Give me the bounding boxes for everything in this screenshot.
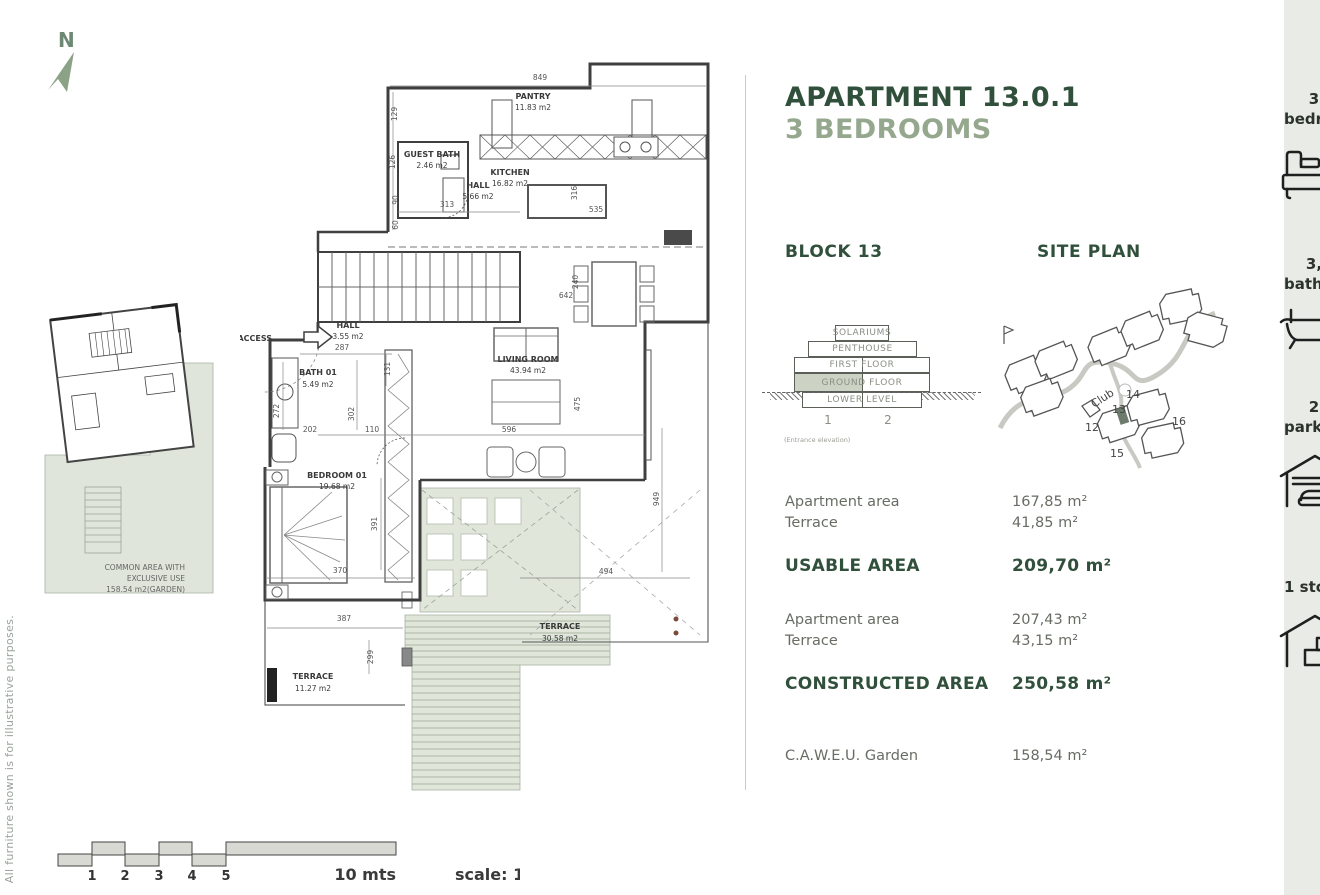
dim: 129 (390, 107, 399, 122)
scale-bar-segments (58, 842, 396, 866)
block-heading: BLOCK 13 (785, 242, 883, 262)
area-row: Apartment area 207,43 m² (0, 612, 1320, 632)
room-label: KITCHEN (490, 168, 529, 177)
site-label-16: 16 (1172, 415, 1186, 428)
feature-count: 3 (1284, 90, 1320, 110)
scale-bar: 1 2 3 4 5 10 mts scale: 1/100 (50, 836, 520, 888)
bathtub-icon (1279, 302, 1320, 358)
scale-tick: 5 (221, 869, 230, 884)
dim: 60 (391, 220, 400, 230)
scale-ratio-label: scale: 1/100 (455, 865, 520, 884)
site-label-13: 13 (1112, 403, 1126, 416)
dim: 202 (303, 425, 318, 434)
level-label: SOLARIUMS (833, 328, 892, 338)
scale-ticks: 1 2 3 4 5 (87, 869, 230, 884)
room-area: 5.49 m2 (302, 380, 333, 389)
area-value: 158,54 m² (1012, 748, 1087, 764)
dim: 126 (388, 155, 397, 170)
dim: 131 (383, 362, 392, 377)
feature-strip: 3 bedrooms 3, bathrooms 2 (1284, 0, 1320, 895)
dining-set (574, 262, 654, 326)
site-label-15: 15 (1110, 447, 1124, 460)
area-row: Apartment area 167,85 m² (0, 494, 1320, 514)
area-label: Terrace (785, 515, 838, 531)
dim: 302 (347, 407, 356, 422)
level-label: GROUND FLOOR (822, 378, 903, 388)
area-value: 167,85 m² (1012, 494, 1087, 510)
unit-number-1: 1 (818, 413, 838, 427)
scale-length-label: 10 mts (334, 865, 396, 884)
scale-tick: 3 (154, 869, 163, 884)
wardrobe (385, 350, 412, 582)
room-area: 43.94 m2 (510, 366, 546, 375)
scale-tick: 2 (120, 869, 129, 884)
bed-icon (1279, 145, 1320, 207)
feature-label: storage (1300, 578, 1320, 596)
scale-tick: 4 (187, 869, 196, 884)
block-elevation-diagram: SOLARIUMS PENTHOUSE FIRST FLOOR GROUND F… (770, 315, 975, 450)
unit-number-2: 2 (878, 413, 898, 427)
dim: 596 (502, 425, 517, 434)
area-label: Terrace (785, 633, 838, 649)
total-label: USABLE AREA (785, 556, 920, 576)
area-value: 43,15 m² (1012, 633, 1078, 649)
room-label: PANTRY (516, 92, 551, 101)
dim: 849 (533, 73, 548, 82)
interior-stairs (318, 252, 520, 322)
room-area: 16.82 m2 (492, 179, 528, 188)
total-value: 209,70 m² (1012, 556, 1111, 576)
feature-count: 2 (1284, 398, 1320, 418)
site-plan-heading: SITE PLAN (1037, 242, 1141, 262)
ground-line (762, 392, 981, 393)
brochure-page: All furniture shown is for illustrative … (0, 0, 1320, 895)
area-label: C.A.W.E.U. Garden (785, 748, 918, 764)
scale-tick: 1 (87, 869, 96, 884)
garden-area-row: C.A.W.E.U. Garden 158,54 m² (0, 748, 1320, 768)
kitchen-fittings (480, 100, 706, 218)
dim: 642 (559, 291, 574, 300)
north-arrow-icon (40, 45, 85, 100)
room-label: BEDROOM 01 (307, 471, 367, 480)
dim: 287 (335, 343, 350, 352)
total-label: CONSTRUCTED AREA (785, 674, 988, 694)
dim: 313 (440, 200, 455, 209)
feature-storage: 1 storage (1284, 578, 1320, 598)
level-label: LOWER LEVEL (827, 395, 897, 405)
level-penthouse: PENTHOUSE (808, 341, 917, 357)
feature-bathrooms: 3, bathrooms (1284, 255, 1320, 294)
ground-hatch (770, 392, 802, 400)
area-label: Apartment area (785, 494, 900, 510)
feature-count: 1 (1284, 578, 1294, 596)
room-label: HALL (466, 181, 489, 190)
page-subtitle: 3 BEDROOMS (785, 114, 992, 145)
room-area: 11.83 m2 (515, 103, 551, 112)
room-label: HALL (336, 321, 359, 330)
living-furniture (487, 328, 565, 477)
feature-label: bathrooms (1284, 275, 1320, 295)
feature-label: parking (1284, 418, 1320, 438)
dim: 240 (571, 275, 580, 290)
room-label: BATH 01 (299, 368, 337, 377)
total-value: 250,58 m² (1012, 674, 1111, 694)
level-label: FIRST FLOOR (829, 360, 894, 370)
dim: 90 (391, 195, 400, 205)
ground-hatch (922, 392, 975, 400)
mini-apartment (50, 305, 193, 462)
room-label: LIVING ROOM (497, 355, 558, 364)
room-label: GUEST BATH (404, 150, 460, 159)
flag-icon (1004, 326, 1013, 344)
room-area: 5.66 m2 (462, 192, 493, 201)
block-caption: (Entrance elevation) (784, 436, 850, 444)
area-row: Terrace 41,85 m² (0, 515, 1320, 535)
garage-car-icon (1279, 448, 1320, 510)
area-row: Terrace 43,15 m² (0, 633, 1320, 653)
feature-label: bedrooms (1284, 110, 1320, 130)
site-label-12: 12 (1085, 421, 1099, 434)
room-area: 2.46 m2 (416, 161, 447, 170)
dim: 272 (272, 404, 281, 419)
page-title: APARTMENT 13.0.1 (785, 82, 1080, 113)
room-area: 19.68 m2 (319, 482, 355, 491)
access-label: ACCESS (240, 334, 272, 343)
site-label-14: 14 (1126, 388, 1140, 401)
garage-storage-icon (1279, 608, 1320, 670)
level-solariums: SOLARIUMS (835, 325, 889, 341)
level-label: PENTHOUSE (832, 344, 893, 354)
feature-bedrooms: 3 bedrooms (1284, 90, 1320, 129)
dim: 316 (570, 186, 579, 201)
room-area: 3.55 m2 (332, 332, 363, 341)
site-plan-map: Club 14 13 12 15 16 (990, 268, 1240, 483)
constructed-area-total: CONSTRUCTED AREA 250,58 m² (0, 674, 1320, 694)
dim: 475 (573, 397, 582, 412)
common-area-line: 158.54 m2(GARDEN) (106, 585, 185, 594)
access-arrow-icon (304, 326, 332, 348)
usable-area-total: USABLE AREA 209,70 m² (0, 556, 1320, 576)
area-value: 41,85 m² (1012, 515, 1078, 531)
area-label: Apartment area (785, 612, 900, 628)
area-value: 207,43 m² (1012, 612, 1087, 628)
feature-count: 3, (1284, 255, 1320, 275)
feature-parking: 2 parking (1284, 398, 1320, 437)
dim: 535 (589, 205, 604, 214)
dim: 110 (365, 425, 380, 434)
